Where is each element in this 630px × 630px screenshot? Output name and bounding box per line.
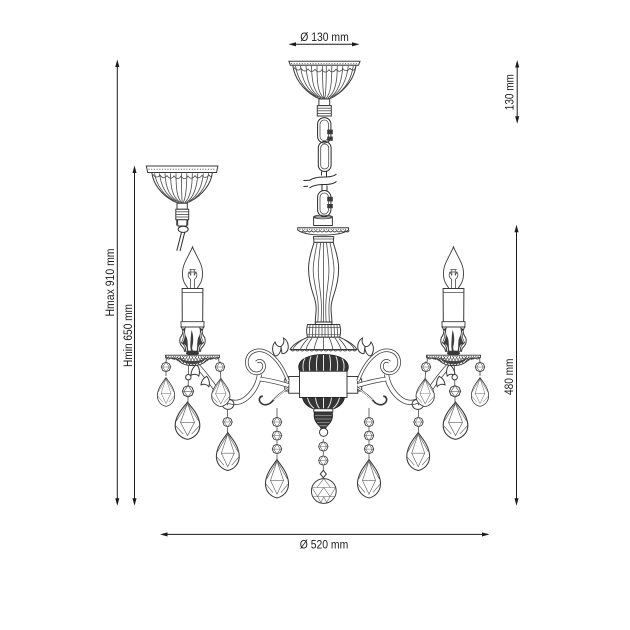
svg-text:130 mm: 130 mm [503,74,517,110]
svg-text:Hmax 910 mm: Hmax 910 mm [103,249,117,317]
svg-text:Ø 520 mm: Ø 520 mm [300,537,349,551]
svg-text:Ø 130 mm: Ø 130 mm [300,30,349,44]
svg-text:480 mm: 480 mm [502,359,516,396]
svg-text:Hmin 650 mm: Hmin 650 mm [121,304,135,367]
